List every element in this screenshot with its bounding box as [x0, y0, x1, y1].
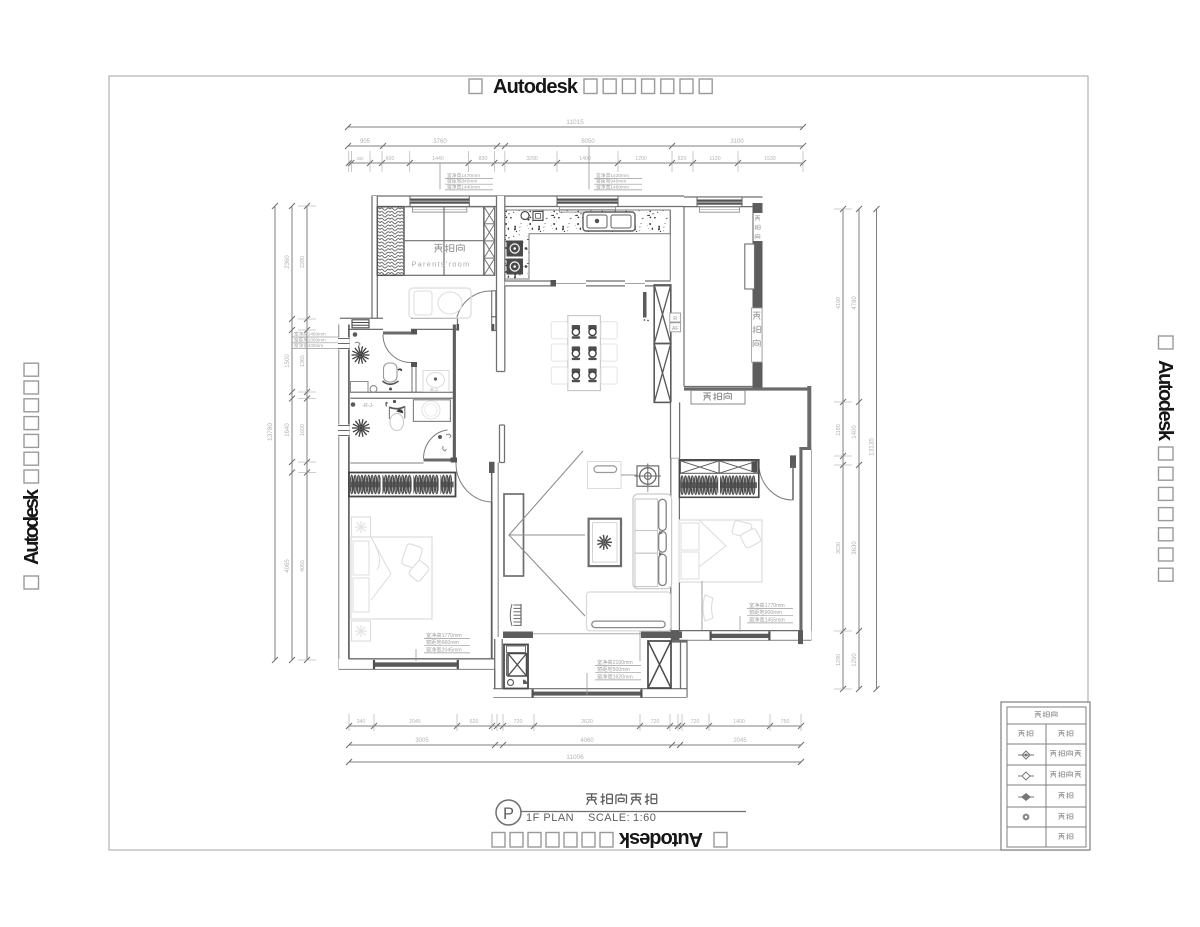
- svg-text:1365: 1365: [300, 355, 306, 367]
- svg-text:窗距地660mm: 窗距地660mm: [426, 638, 459, 646]
- svg-text:13135: 13135: [869, 438, 876, 456]
- svg-text:720: 720: [651, 719, 660, 725]
- svg-text:室净高1470mm: 室净高1470mm: [447, 172, 480, 179]
- svg-text:3100: 3100: [730, 139, 744, 145]
- svg-text:窗净宽1460mm: 窗净宽1460mm: [596, 183, 629, 190]
- svg-text:1130: 1130: [709, 156, 720, 162]
- svg-text:窗距地500mm: 窗距地500mm: [597, 665, 630, 673]
- svg-text:1290: 1290: [635, 156, 647, 162]
- svg-text:1530: 1530: [764, 156, 776, 162]
- svg-text:SCALE:: SCALE:: [588, 812, 630, 824]
- svg-text:600: 600: [386, 156, 395, 162]
- svg-text:820: 820: [678, 156, 687, 162]
- svg-text:Autodesk: Autodesk: [618, 828, 703, 850]
- svg-text:窗净宽1455mm: 窗净宽1455mm: [749, 615, 785, 623]
- svg-text:6050: 6050: [581, 139, 595, 145]
- svg-text:窗净宽2045mm: 窗净宽2045mm: [426, 645, 462, 653]
- svg-text:4065: 4065: [300, 560, 306, 572]
- svg-text:1290: 1290: [836, 654, 842, 666]
- svg-text:Parents’room: Parents’room: [411, 260, 470, 269]
- svg-text:750: 750: [781, 719, 790, 725]
- svg-text:室净高2100mm: 室净高2100mm: [597, 658, 633, 666]
- svg-text:R: R: [673, 316, 677, 322]
- svg-text:Autodesk: Autodesk: [1154, 360, 1176, 442]
- svg-text:13780: 13780: [267, 423, 274, 441]
- svg-text:室净高1770mm: 室净高1770mm: [426, 631, 462, 639]
- svg-text:窗净宽1440mm: 窗净宽1440mm: [447, 183, 480, 190]
- svg-text:1400: 1400: [852, 425, 858, 439]
- svg-text:720: 720: [691, 719, 700, 725]
- svg-text:1500: 1500: [285, 354, 291, 368]
- svg-text:AF: AF: [672, 326, 678, 332]
- svg-text:窗距地900mm: 窗距地900mm: [749, 608, 782, 616]
- svg-text:4190: 4190: [836, 297, 842, 309]
- svg-text:4065: 4065: [285, 559, 291, 573]
- svg-text:620: 620: [470, 719, 479, 725]
- svg-text:3290: 3290: [526, 156, 538, 162]
- svg-text:905: 905: [360, 139, 371, 145]
- svg-text:窗距地940mm: 窗距地940mm: [596, 178, 626, 185]
- svg-text:2280: 2280: [300, 256, 306, 268]
- svg-text:11015: 11015: [566, 119, 584, 126]
- svg-text:11006: 11006: [566, 754, 584, 761]
- svg-text:2620: 2620: [581, 719, 593, 725]
- svg-text:1180: 1180: [836, 424, 842, 436]
- svg-text:窗净宽1620mm: 窗净宽1620mm: [597, 672, 633, 680]
- svg-text:1640: 1640: [285, 423, 291, 437]
- svg-text:3005: 3005: [415, 738, 429, 744]
- svg-text:4060: 4060: [580, 738, 594, 744]
- svg-text:720: 720: [514, 719, 523, 725]
- svg-text:3760: 3760: [433, 139, 447, 145]
- svg-text:P: P: [503, 805, 514, 823]
- svg-text:Autodesk: Autodesk: [21, 488, 43, 565]
- svg-text:1:60: 1:60: [633, 812, 656, 824]
- svg-text:830: 830: [479, 156, 488, 162]
- svg-text:窗净宽430mm: 窗净宽430mm: [294, 342, 323, 349]
- svg-text:2045: 2045: [733, 738, 747, 744]
- svg-text:Autodesk: Autodesk: [493, 76, 579, 98]
- svg-text:3630: 3630: [852, 541, 858, 555]
- svg-text:2360: 2360: [285, 255, 291, 269]
- svg-text:室净高1770mm: 室净高1770mm: [749, 601, 785, 609]
- svg-text:1F PLAN: 1F PLAN: [526, 812, 574, 824]
- svg-text:2045: 2045: [409, 719, 421, 725]
- svg-text:-R-J-: -R-J-: [429, 388, 439, 393]
- svg-text:窗距地840mm: 窗距地840mm: [447, 178, 477, 185]
- svg-text:1290: 1290: [852, 653, 858, 667]
- svg-text:1400: 1400: [733, 719, 745, 725]
- svg-text:200: 200: [357, 156, 365, 161]
- svg-text:室净高1420mm: 室净高1420mm: [596, 172, 629, 179]
- svg-text:-R-J-: -R-J-: [362, 403, 373, 409]
- svg-text:3630: 3630: [836, 542, 842, 554]
- svg-text:4780: 4780: [852, 296, 858, 310]
- svg-text:340: 340: [357, 719, 366, 725]
- svg-text:1440: 1440: [432, 156, 444, 162]
- svg-text:1600: 1600: [300, 424, 306, 436]
